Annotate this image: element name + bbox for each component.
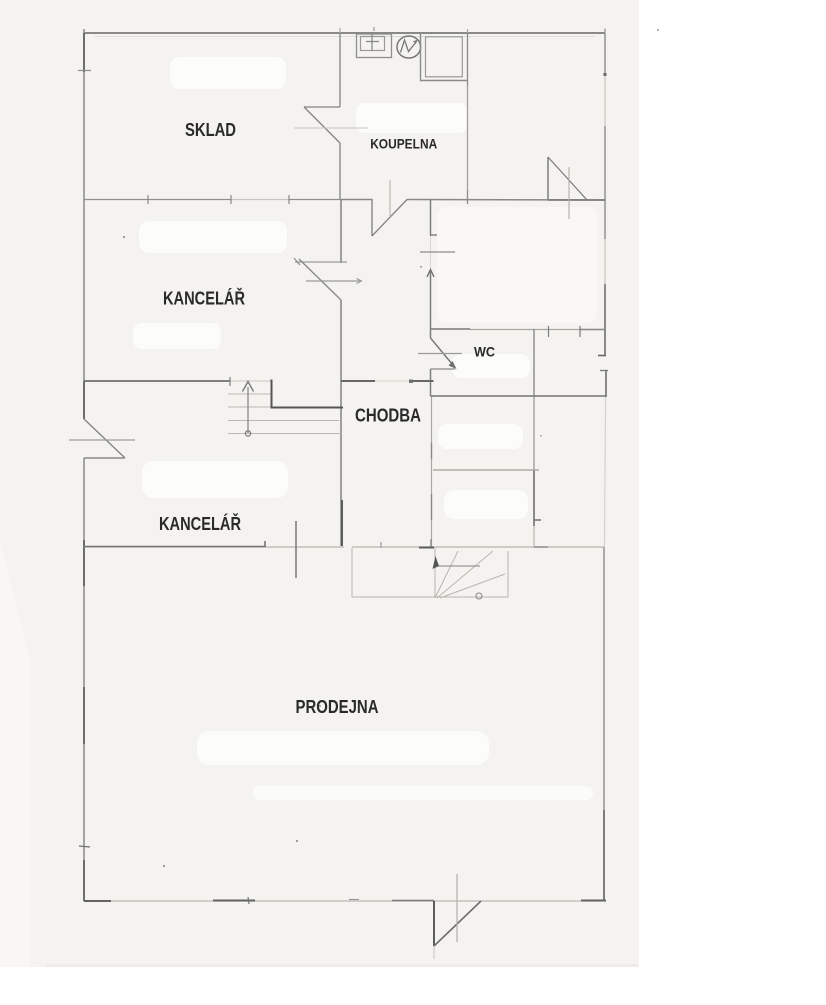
svg-text:PRODEJNA: PRODEJNA <box>296 697 379 717</box>
svg-text:KANCELÁŘ: KANCELÁŘ <box>159 513 241 534</box>
svg-text:KOUPELNA: KOUPELNA <box>370 136 437 152</box>
svg-text:CHODBA: CHODBA <box>355 406 421 426</box>
svg-text:SKLAD: SKLAD <box>185 120 236 140</box>
svg-text:KANCELÁŘ: KANCELÁŘ <box>163 288 245 309</box>
svg-text:WC: WC <box>474 344 495 360</box>
